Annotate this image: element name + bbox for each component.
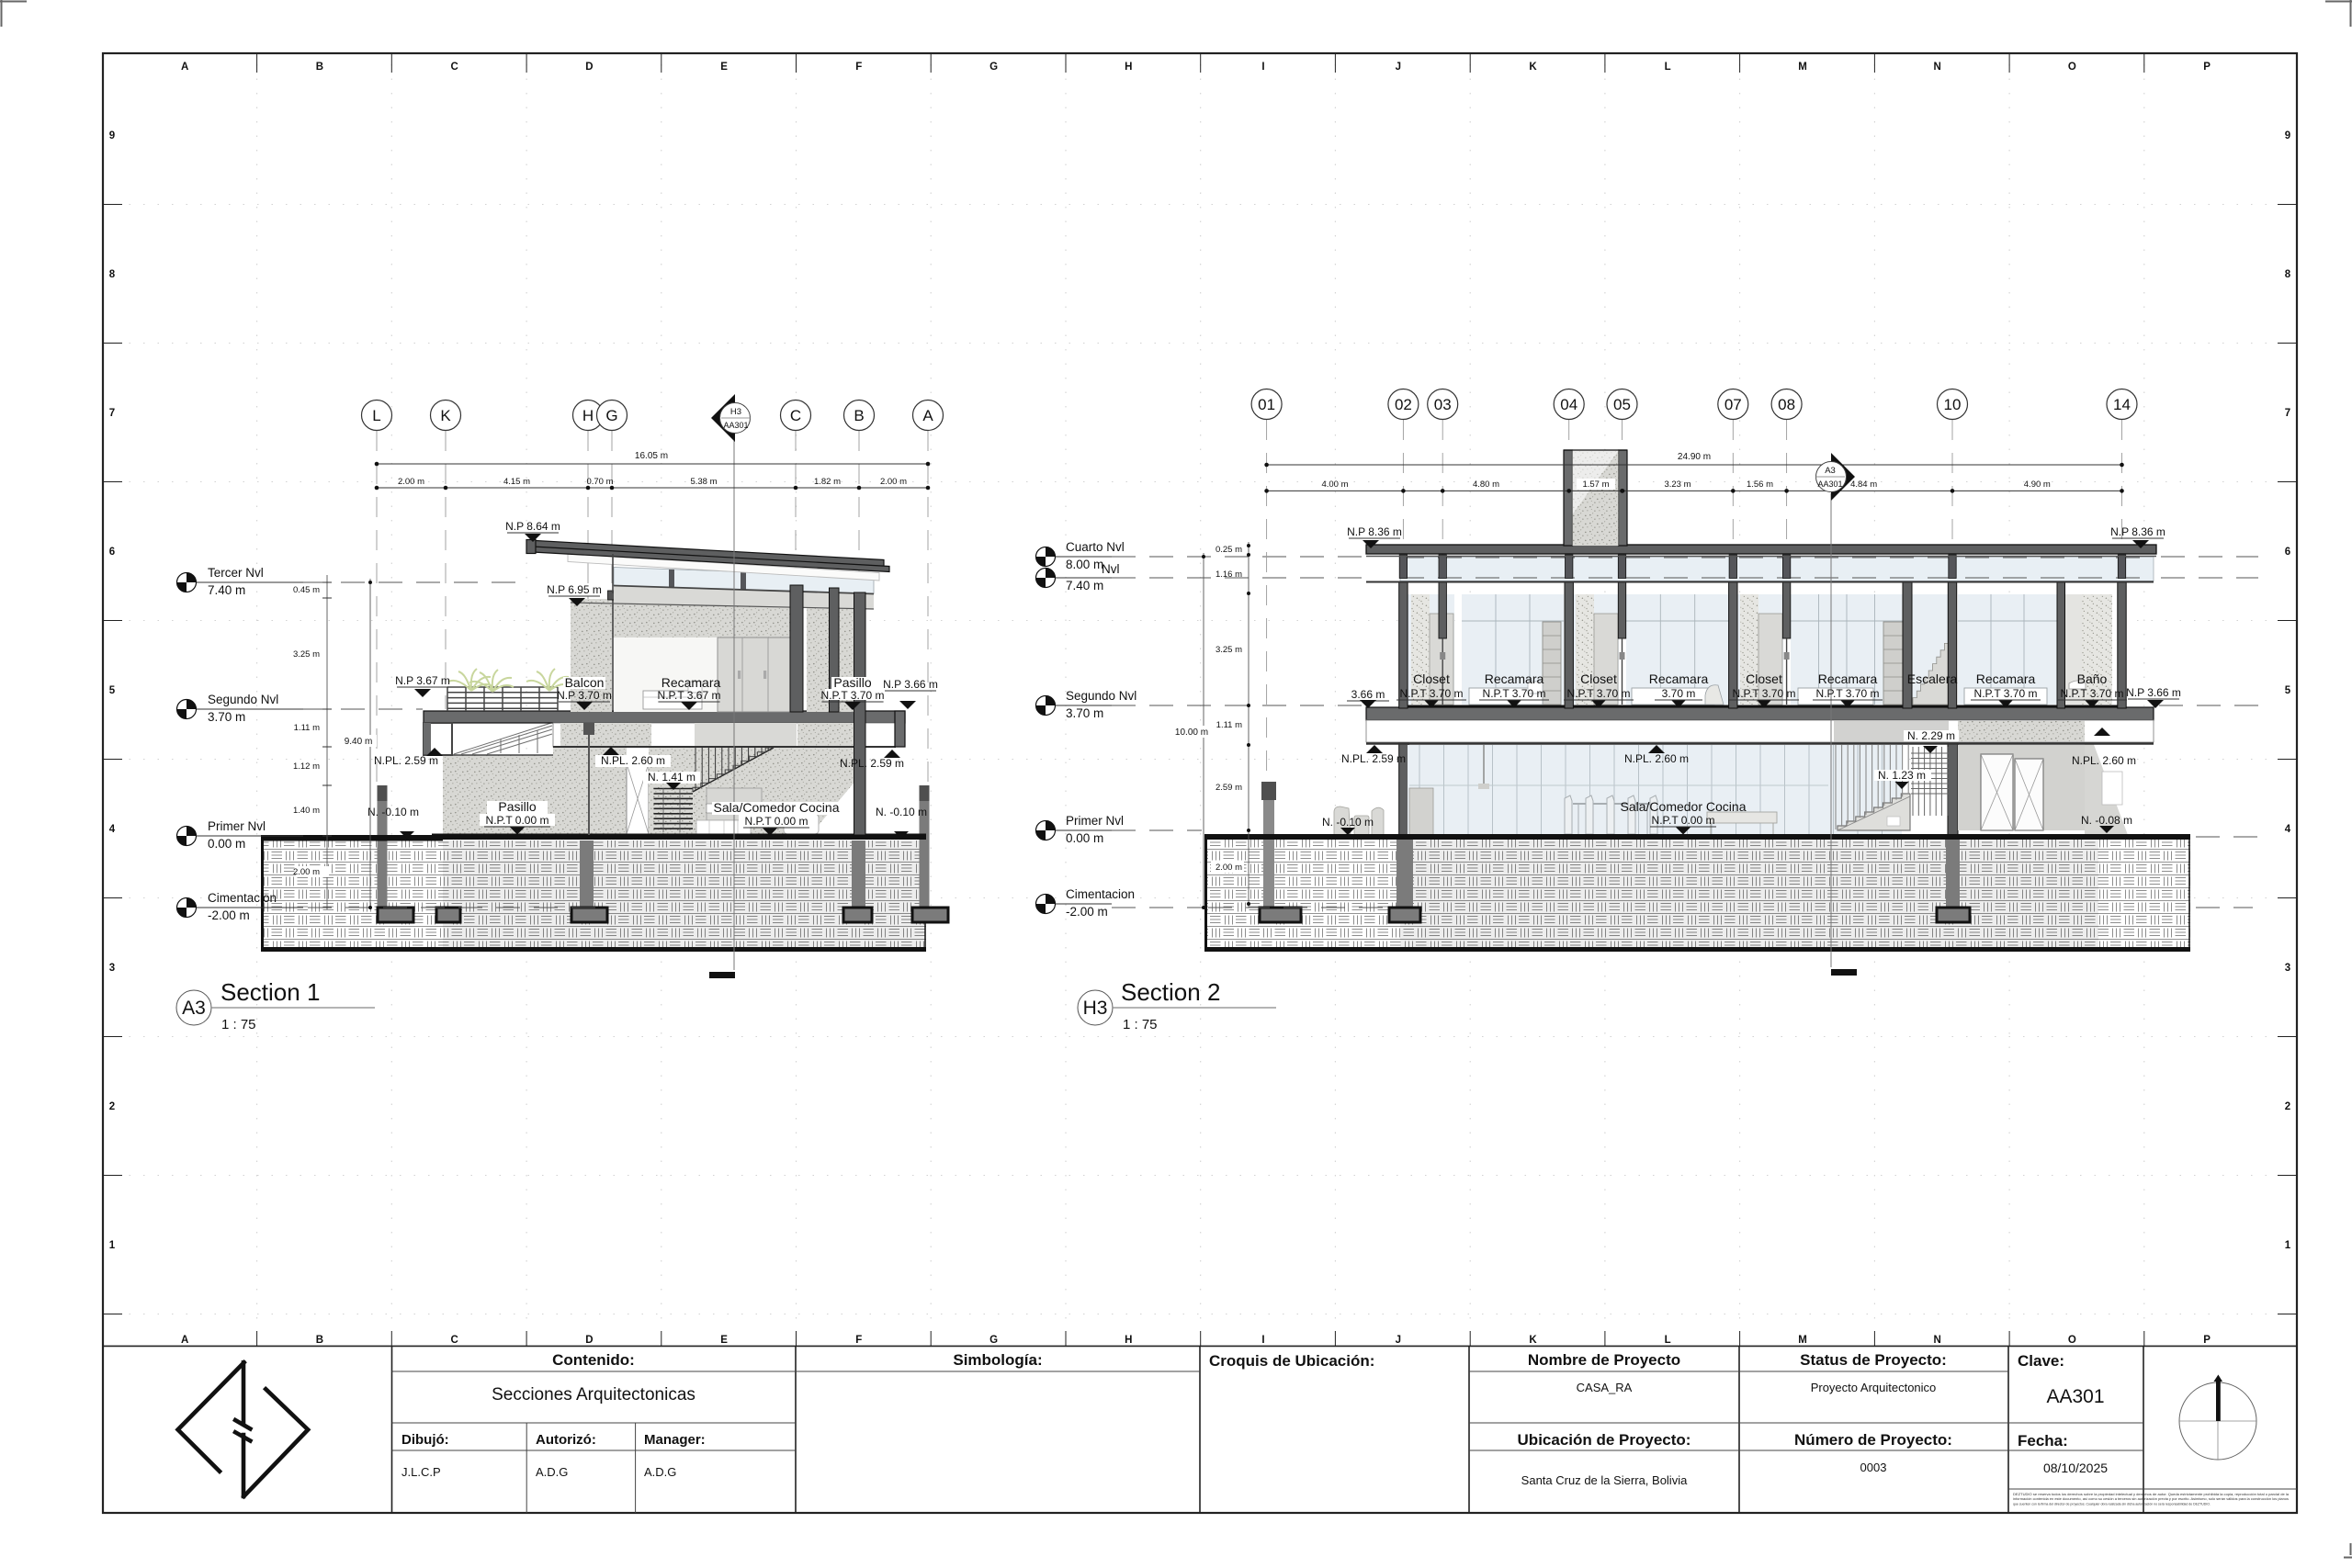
svg-text:L: L (372, 407, 380, 424)
svg-text:5: 5 (109, 685, 116, 696)
svg-text:N.P.T 3.70 m: N.P.T 3.70 m (1733, 687, 1796, 700)
svg-text:N.PL. 2.59 m: N.PL. 2.59 m (374, 754, 438, 767)
svg-text:04: 04 (1560, 396, 1577, 413)
svg-text:4.00 m: 4.00 m (1321, 479, 1348, 490)
svg-text:N. 2.29 m: N. 2.29 m (1907, 729, 1955, 742)
svg-text:L: L (1665, 62, 1671, 73)
svg-text:J: J (1396, 1335, 1401, 1346)
svg-text:N.P.T 3.70 m: N.P.T 3.70 m (2061, 687, 2124, 700)
svg-text:N.PL. 2.59 m: N.PL. 2.59 m (840, 757, 904, 770)
svg-text:-2.00 m: -2.00 m (1066, 905, 1108, 919)
svg-text:Autorizó:: Autorizó: (536, 1432, 596, 1448)
svg-text:4: 4 (109, 824, 116, 835)
svg-text:N.P.T 3.70 m: N.P.T 3.70 m (1974, 687, 2038, 700)
svg-text:4.80 m: 4.80 m (1473, 479, 1499, 490)
svg-text:N.P 8.36 m: N.P 8.36 m (1347, 525, 1402, 538)
svg-text:H: H (1125, 1335, 1132, 1346)
svg-text:Recamara: Recamara (661, 675, 721, 690)
svg-text:N. -0.10 m: N. -0.10 m (367, 806, 419, 818)
svg-text:8: 8 (2285, 269, 2291, 280)
svg-text:K: K (1529, 62, 1537, 73)
svg-text:08/10/2025: 08/10/2025 (2043, 1461, 2108, 1475)
svg-text:N. 1.23 m: N. 1.23 m (1878, 769, 1926, 782)
svg-text:Recamara: Recamara (1976, 671, 2036, 686)
svg-text:02: 02 (1395, 396, 1412, 413)
svg-text:Recamara: Recamara (1485, 671, 1544, 686)
svg-text:A: A (181, 62, 188, 73)
svg-text:Cuarto Nvl: Cuarto Nvl (1066, 540, 1125, 554)
svg-text:N.P 3.67 m: N.P 3.67 m (395, 674, 450, 687)
svg-text:2: 2 (2285, 1101, 2290, 1112)
svg-text:Baño: Baño (2077, 671, 2108, 686)
svg-text:6: 6 (2285, 547, 2290, 558)
svg-text:N.P 3.66 m: N.P 3.66 m (2126, 686, 2181, 699)
svg-text:Fecha:: Fecha: (2018, 1432, 2068, 1450)
svg-text:A3: A3 (1825, 466, 1836, 476)
svg-text:Status de Proyecto:: Status de Proyecto: (1800, 1351, 1947, 1369)
svg-text:7: 7 (109, 408, 115, 419)
svg-text:0.45 m: 0.45 m (293, 585, 320, 595)
svg-text:Nombre de Proyecto: Nombre de Proyecto (1528, 1351, 1680, 1369)
svg-text:2.00 m: 2.00 m (880, 477, 907, 487)
svg-text:A.D.G: A.D.G (644, 1465, 676, 1479)
svg-text:M: M (1798, 1335, 1807, 1346)
svg-text:G: G (989, 62, 998, 73)
svg-text:N.P.T 3.70 m: N.P.T 3.70 m (1483, 687, 1546, 700)
svg-text:3.66 m: 3.66 m (1351, 688, 1385, 701)
svg-text:Closet: Closet (1580, 671, 1617, 686)
svg-text:N.P.T 0.00 m: N.P.T 0.00 m (745, 815, 808, 828)
svg-text:01: 01 (1258, 396, 1275, 413)
svg-text:Pasillo: Pasillo (498, 799, 536, 814)
svg-text:2: 2 (109, 1101, 115, 1112)
svg-text:4.84 m: 4.84 m (1850, 479, 1877, 490)
svg-text:2.00 m: 2.00 m (293, 867, 320, 877)
svg-text:N.P 3.70 m: N.P 3.70 m (557, 689, 612, 702)
svg-text:H: H (1125, 62, 1132, 73)
svg-text:C: C (451, 62, 458, 73)
svg-text:O: O (2068, 1335, 2076, 1346)
svg-text:que cuenten con la firma del d: que cuenten con la firma del director de… (2013, 1501, 2211, 1506)
svg-text:Cimentacion: Cimentacion (1066, 887, 1135, 901)
svg-text:Número de Proyecto:: Número de Proyecto: (1794, 1431, 1952, 1449)
svg-text:4: 4 (2285, 824, 2291, 835)
svg-text:3.70 m: 3.70 m (208, 710, 245, 724)
svg-text:N.P 3.66 m: N.P 3.66 m (883, 678, 938, 691)
svg-text:K: K (1529, 1335, 1537, 1346)
svg-text:5.38 m: 5.38 m (690, 477, 717, 487)
svg-text:7.40 m: 7.40 m (1066, 579, 1103, 592)
svg-text:Contenido:: Contenido: (552, 1351, 635, 1369)
svg-text:24.90 m: 24.90 m (1678, 452, 1711, 462)
svg-text:Santa Cruz de la Sierra, Boliv: Santa Cruz de la Sierra, Bolivia (1521, 1473, 1688, 1487)
svg-text:1: 1 (2285, 1240, 2291, 1251)
svg-text:1 : 75: 1 : 75 (1123, 1017, 1158, 1032)
svg-text:E: E (720, 62, 728, 73)
svg-text:Escalera: Escalera (1907, 671, 1958, 686)
svg-text:AA301: AA301 (723, 421, 748, 430)
svg-text:3.70 m: 3.70 m (1662, 687, 1696, 700)
svg-text:J: J (1396, 62, 1401, 73)
svg-text:N.P.T 3.70 m: N.P.T 3.70 m (1567, 687, 1631, 700)
svg-text:1.40 m: 1.40 m (293, 806, 320, 816)
svg-text:F: F (855, 62, 862, 73)
svg-text:2.00 m: 2.00 m (1216, 863, 1242, 873)
svg-text:Section 2: Section 2 (1121, 978, 1220, 1006)
svg-text:H3: H3 (1083, 998, 1108, 1019)
svg-text:AA301: AA301 (2046, 1386, 2104, 1407)
svg-text:4.90 m: 4.90 m (2024, 479, 2051, 490)
svg-text:-2.00 m: -2.00 m (208, 908, 250, 922)
svg-text:0003: 0003 (1860, 1461, 1887, 1474)
svg-text:N.P 8.36 m: N.P 8.36 m (2110, 525, 2165, 538)
svg-text:I: I (1261, 62, 1264, 73)
svg-text:N. -0.10 m: N. -0.10 m (876, 806, 927, 818)
svg-text:10: 10 (1944, 396, 1962, 413)
svg-text:9.40 m: 9.40 m (345, 737, 373, 747)
svg-text:14: 14 (2113, 396, 2131, 413)
svg-text:Simbología:: Simbología: (953, 1351, 1042, 1369)
svg-text:3.23 m: 3.23 m (1664, 479, 1690, 490)
svg-text:N.PL. 2.60 m: N.PL. 2.60 m (2072, 754, 2136, 767)
svg-text:F: F (855, 1335, 862, 1346)
svg-text:0.25 m: 0.25 m (1216, 545, 1242, 555)
svg-text:Sala/Comedor Cocina: Sala/Comedor Cocina (1621, 799, 1747, 814)
svg-text:A: A (181, 1335, 188, 1346)
svg-text:CASA_RA: CASA_RA (1577, 1381, 1633, 1394)
svg-text:3.70 m: 3.70 m (1066, 706, 1103, 720)
svg-text:9: 9 (2285, 130, 2290, 141)
svg-text:Balcon: Balcon (565, 675, 605, 690)
svg-text:K: K (440, 407, 451, 424)
svg-text:4.15 m: 4.15 m (503, 477, 530, 487)
svg-text:N. 1.41 m: N. 1.41 m (648, 771, 695, 784)
svg-text:Section 1: Section 1 (220, 978, 320, 1006)
svg-text:N.PL. 2.60 m: N.PL. 2.60 m (601, 754, 665, 767)
svg-text:7: 7 (2285, 408, 2290, 419)
svg-text:N.P.T 3.67 m: N.P.T 3.67 m (658, 689, 721, 702)
svg-text:Nvl: Nvl (1102, 562, 1120, 576)
svg-text:Primer Nvl: Primer Nvl (208, 819, 266, 833)
svg-text:Cimentacion: Cimentacion (208, 891, 277, 905)
svg-text:Secciones Arquitectonicas: Secciones Arquitectonicas (492, 1385, 695, 1404)
svg-text:Closet: Closet (1413, 671, 1450, 686)
svg-text:G: G (605, 407, 617, 424)
svg-text:A.D.G: A.D.G (536, 1465, 568, 1479)
svg-text:6: 6 (109, 547, 115, 558)
svg-text:H3: H3 (730, 407, 741, 417)
svg-text:Croquis de Ubicación:: Croquis de Ubicación: (1209, 1352, 1374, 1370)
svg-text:D: D (585, 62, 593, 73)
svg-text:D: D (585, 1335, 593, 1346)
svg-text:N: N (1934, 62, 1941, 73)
svg-text:A: A (922, 407, 933, 424)
svg-text:L: L (1665, 1335, 1671, 1346)
svg-text:N.P 8.64 m: N.P 8.64 m (505, 520, 560, 533)
svg-text:P: P (2203, 62, 2211, 73)
svg-text:Segundo Nvl: Segundo Nvl (208, 693, 278, 706)
svg-text:N. -0.10 m: N. -0.10 m (1322, 816, 1374, 829)
svg-text:8: 8 (109, 269, 116, 280)
svg-text:3.25 m: 3.25 m (293, 649, 320, 660)
svg-text:9: 9 (109, 130, 115, 141)
svg-text:1: 1 (109, 1240, 116, 1251)
svg-text:Ubicación de Proyecto:: Ubicación de Proyecto: (1518, 1431, 1691, 1449)
svg-text:2.59 m: 2.59 m (1216, 783, 1242, 793)
svg-text:0.70 m: 0.70 m (586, 477, 613, 487)
svg-text:N.PL. 2.60 m: N.PL. 2.60 m (1624, 752, 1689, 765)
svg-text:0.00 m: 0.00 m (208, 837, 245, 851)
svg-text:03: 03 (1434, 396, 1452, 413)
svg-text:16.05 m: 16.05 m (635, 451, 668, 461)
svg-text:N.PL. 2.59 m: N.PL. 2.59 m (1341, 752, 1406, 765)
svg-text:N.P.T 0.00 m: N.P.T 0.00 m (1652, 814, 1715, 827)
svg-text:Sala/Comedor Cocina: Sala/Comedor Cocina (714, 800, 840, 815)
svg-text:2.00 m: 2.00 m (398, 477, 424, 487)
svg-text:N. -0.08 m: N. -0.08 m (2081, 814, 2132, 827)
svg-text:G: G (989, 1335, 998, 1346)
svg-text:Primer Nvl: Primer Nvl (1066, 814, 1124, 828)
svg-text:E: E (720, 1335, 728, 1346)
svg-text:3.25 m: 3.25 m (1216, 645, 1242, 655)
svg-text:N: N (1934, 1335, 1941, 1346)
svg-text:M: M (1798, 62, 1807, 73)
svg-text:Recamara: Recamara (1649, 671, 1709, 686)
svg-text:N.P.T 0.00 m: N.P.T 0.00 m (486, 814, 549, 827)
svg-text:0.00 m: 0.00 m (1066, 831, 1103, 845)
svg-text:3: 3 (109, 963, 115, 974)
svg-text:C: C (451, 1335, 458, 1346)
svg-text:P: P (2203, 1335, 2211, 1346)
svg-text:1.56 m: 1.56 m (1747, 479, 1773, 490)
svg-text:08: 08 (1778, 396, 1795, 413)
svg-text:AA301: AA301 (1817, 479, 1842, 489)
svg-text:1.82 m: 1.82 m (814, 477, 841, 487)
svg-text:1.57 m: 1.57 m (1582, 479, 1609, 490)
svg-text:1.11 m: 1.11 m (1216, 720, 1242, 730)
svg-text:Manager:: Manager: (644, 1432, 706, 1448)
svg-text:1.12 m: 1.12 m (293, 761, 320, 772)
svg-text:05: 05 (1613, 396, 1631, 413)
svg-text:Proyecto Arquitectonico: Proyecto Arquitectonico (1811, 1381, 1937, 1394)
svg-text:J.L.C.P: J.L.C.P (401, 1465, 441, 1479)
svg-text:N.P.T 3.70 m: N.P.T 3.70 m (1400, 687, 1464, 700)
svg-text:C: C (790, 407, 801, 424)
svg-text:5: 5 (2285, 685, 2291, 696)
svg-text:Clave:: Clave: (2018, 1352, 2064, 1370)
svg-text:O: O (2068, 62, 2076, 73)
svg-text:1.11 m: 1.11 m (294, 723, 320, 733)
svg-text:3: 3 (2285, 963, 2290, 974)
svg-text:Tercer Nvl: Tercer Nvl (208, 566, 264, 580)
svg-text:1.16 m: 1.16 m (1216, 570, 1242, 580)
svg-text:N.P.T 3.70 m: N.P.T 3.70 m (821, 689, 885, 702)
svg-text:A3: A3 (182, 998, 206, 1019)
svg-text:B: B (854, 407, 864, 424)
svg-text:Pasillo: Pasillo (833, 675, 871, 690)
svg-text:Recamara: Recamara (1818, 671, 1878, 686)
svg-text:Dibujó:: Dibujó: (401, 1432, 449, 1448)
svg-text:I: I (1261, 1335, 1264, 1346)
svg-text:10.00 m: 10.00 m (1175, 728, 1208, 738)
svg-text:07: 07 (1724, 396, 1742, 413)
svg-text:B: B (316, 62, 323, 73)
svg-text:N.P.T 3.70 m: N.P.T 3.70 m (1816, 687, 1880, 700)
svg-text:Closet: Closet (1746, 671, 1782, 686)
svg-text:1 : 75: 1 : 75 (221, 1017, 256, 1032)
svg-text:Segundo Nvl: Segundo Nvl (1066, 689, 1136, 703)
svg-text:7.40 m: 7.40 m (208, 583, 245, 597)
svg-text:8.00 m: 8.00 m (1066, 558, 1103, 571)
svg-text:B: B (316, 1335, 323, 1346)
svg-text:H: H (582, 407, 594, 424)
svg-text:N.P 6.95 m: N.P 6.95 m (547, 583, 602, 596)
